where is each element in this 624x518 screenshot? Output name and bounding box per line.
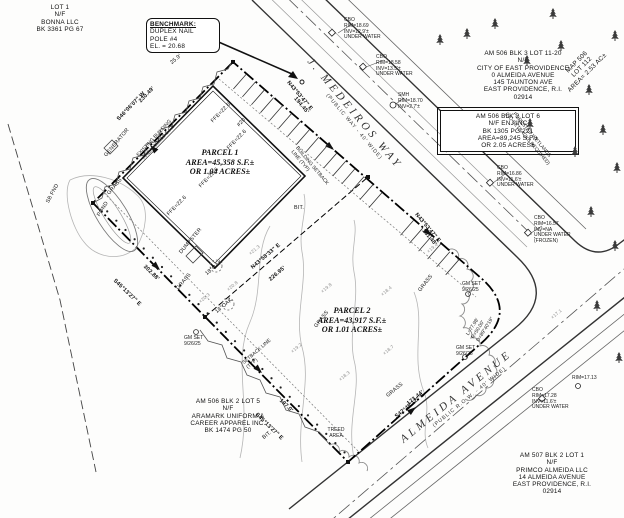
fence-post-dot: [188, 294, 190, 296]
parking-stall-line: [251, 90, 264, 105]
benchmark-leader: [214, 40, 304, 84]
parking-stall-line: [369, 192, 382, 207]
fence-post-dot: [170, 275, 172, 277]
fence-post-dot: [334, 442, 336, 444]
fence-post-dot: [161, 266, 163, 268]
parking-stall-line: [351, 177, 364, 192]
parking-stall-line: [324, 153, 337, 168]
parking-stall-line: [279, 113, 292, 128]
fence-post-dot: [124, 229, 126, 231]
parking-stall-line: [233, 74, 246, 89]
fence-post-dot: [261, 368, 263, 370]
fence-post-dot: [289, 396, 291, 398]
parking-stall-line: [419, 236, 432, 251]
note-leaders: [338, 24, 542, 233]
fence-post-dot: [207, 312, 209, 314]
fence-post-dot: [106, 210, 108, 212]
existing-building-footprint: [123, 86, 305, 268]
parking-stall-line: [446, 260, 459, 275]
parking-stall-line: [410, 228, 423, 243]
fence-post-dot: [243, 349, 245, 351]
fence-post-dot: [307, 414, 309, 416]
parking-stall-line: [242, 82, 255, 97]
fence-post-dot: [298, 405, 300, 407]
parking-stall-line: [269, 105, 282, 120]
parking-stall-line: [437, 252, 450, 267]
parking-stall-line: [260, 98, 273, 113]
survey-plan-sheet: LOT 1N/FBONNA LLCBK 3361 PG 67BENCHMARK:…: [0, 0, 624, 518]
road-edges: [252, 0, 624, 518]
fence-post-dot: [216, 322, 218, 324]
fence-post-dot: [280, 386, 282, 388]
fence-post-dot: [134, 238, 136, 240]
parking-stall-line: [297, 129, 310, 144]
fence-post-dot: [152, 257, 154, 259]
fence-post-dot: [197, 303, 199, 305]
gm-markers: [194, 292, 471, 360]
fence-post-dot: [225, 331, 227, 333]
parking-stall-line: [306, 137, 319, 152]
parking-stall-line: [342, 169, 355, 184]
utility-structure-symbols: [328, 29, 580, 402]
fence-post-dot: [179, 284, 181, 286]
fence-post-dot: [325, 433, 327, 435]
fence-post-dot: [343, 451, 345, 453]
parking-stall-line: [360, 185, 373, 200]
parking-stall-line: [288, 121, 301, 136]
fence-post-dot: [234, 340, 236, 342]
parking-stall-line: [315, 145, 328, 160]
fence-post-dot: [115, 220, 117, 222]
parking-stall-line: [428, 244, 441, 259]
fence-post-dot: [252, 359, 254, 361]
fence-post-dot: [143, 247, 145, 249]
fence-post-dot: [316, 423, 318, 425]
survey-linework-canvas: [0, 0, 624, 518]
parking-stall-line: [401, 220, 414, 235]
parking-stall-line: [333, 161, 346, 176]
fence-post-dot: [270, 377, 272, 379]
generator-pad: [104, 140, 118, 154]
property-boundary: [93, 62, 500, 462]
